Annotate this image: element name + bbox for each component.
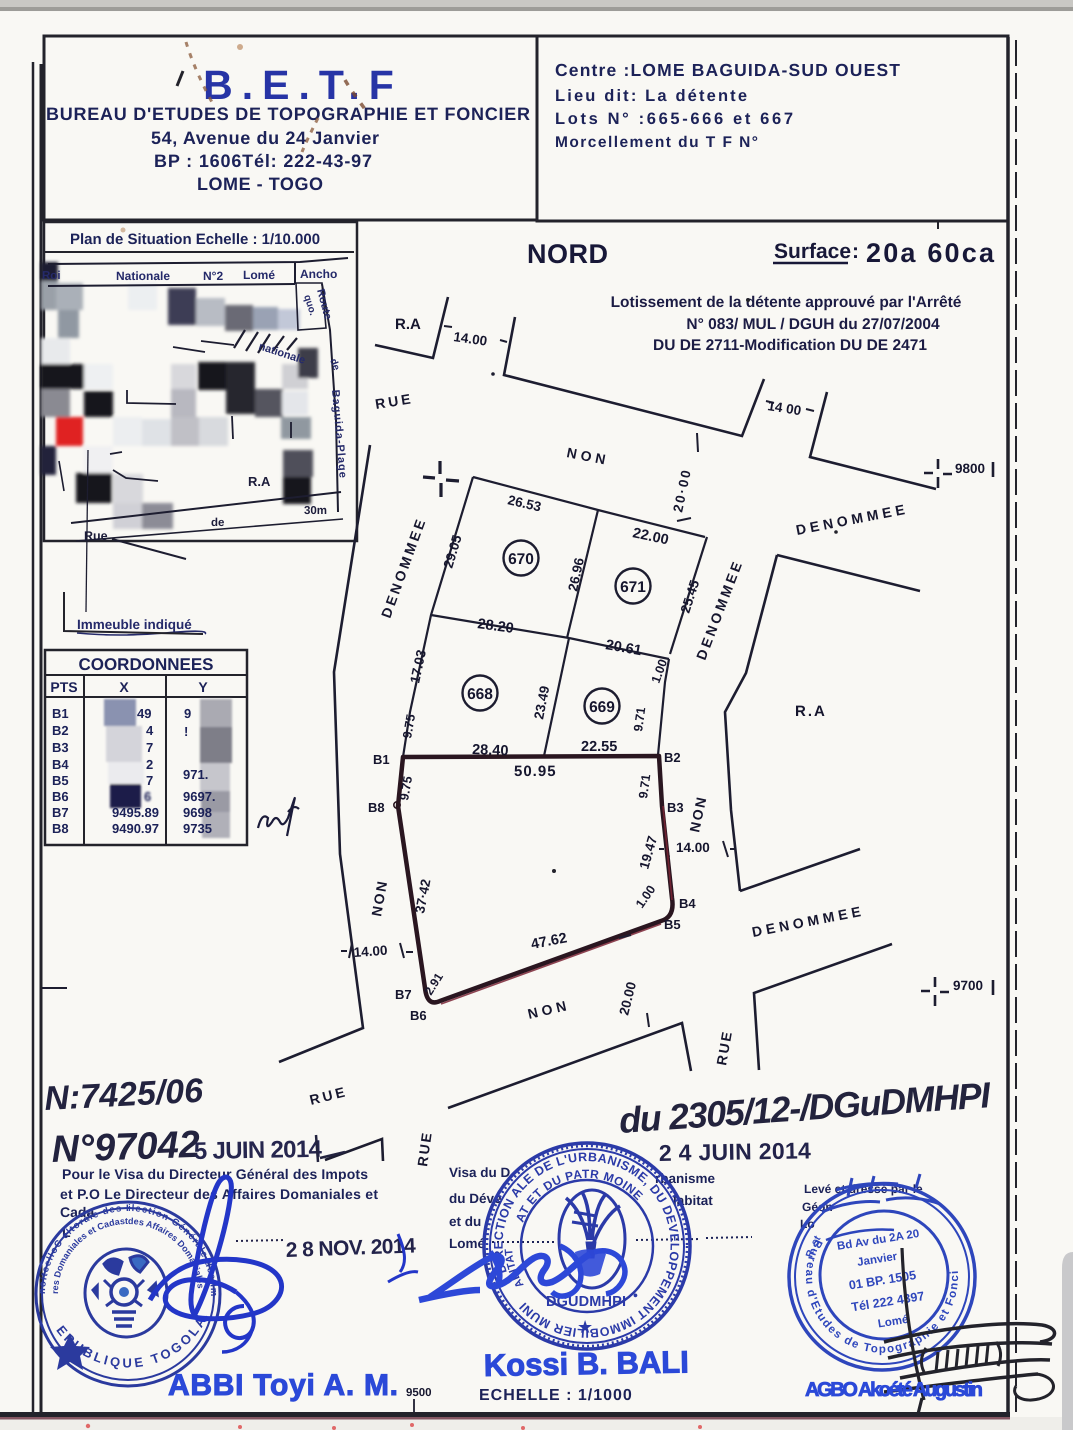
svg-text:et du: et du [449, 1214, 481, 1229]
svg-text:9495.89: 9495.89 [112, 805, 159, 820]
svg-text:9800: 9800 [955, 461, 985, 476]
svg-text:7: 7 [146, 773, 153, 788]
svg-text:B.E.T.F: B.E.T.F [203, 62, 403, 108]
svg-text:B1: B1 [373, 752, 390, 767]
svg-text:Immeuble indiqué: Immeuble indiqué [77, 617, 192, 632]
svg-text:9698: 9698 [183, 805, 212, 820]
svg-text:Visa du D: Visa du D [449, 1165, 511, 1180]
svg-text:54, Avenue du 24 Janvier: 54, Avenue du 24 Janvier [151, 128, 379, 148]
svg-text:N°2: N°2 [203, 269, 223, 283]
svg-text:•: • [633, 1287, 638, 1303]
svg-text:668: 668 [467, 686, 493, 703]
svg-text:B3: B3 [52, 740, 69, 755]
svg-text:B3: B3 [667, 800, 684, 815]
svg-text:ECHELLE : 1/1000: ECHELLE : 1/1000 [479, 1387, 633, 1404]
svg-text:Ancho: Ancho [300, 267, 337, 281]
svg-text:30m: 30m [304, 505, 327, 517]
svg-text:9490.97: 9490.97 [112, 821, 159, 836]
svg-text:N°97042: N°97042 [51, 1124, 201, 1171]
svg-text:Pour le Visa du Directeur Géné: Pour le Visa du Directeur Général des Im… [62, 1166, 368, 1182]
svg-text:6: 6 [144, 789, 151, 804]
svg-text:669: 669 [589, 699, 615, 716]
svg-text:14.00: 14.00 [353, 943, 388, 960]
svg-text:B7: B7 [395, 987, 412, 1002]
svg-text:Centre :LOME BAGUIDA-SUD OUEST: Centre :LOME BAGUIDA-SUD OUEST [555, 60, 900, 80]
svg-text:Nationale: Nationale [116, 269, 170, 283]
svg-text:50.95: 50.95 [514, 763, 557, 780]
svg-text:N° 083/ MUL / DGUH du 27/07/20: N° 083/ MUL / DGUH du 27/07/2004 [686, 316, 940, 333]
svg-text:B5: B5 [664, 917, 681, 932]
svg-text:9700: 9700 [953, 978, 983, 993]
svg-text:Plan de Situation Echelle : 1/: Plan de Situation Echelle : 1/10.000 [70, 231, 320, 248]
svg-text:de: de [211, 517, 224, 529]
svg-text:BP : 1606Tél: 222-43-97: BP : 1606Tél: 222-43-97 [154, 151, 372, 171]
svg-text:Morcellement du T F N°: Morcellement du T F N° [555, 134, 758, 151]
svg-text:R.A: R.A [248, 474, 271, 489]
svg-text:5 JUIN 2014: 5 JUIN 2014 [194, 1136, 323, 1165]
svg-text:NORD: NORD [527, 239, 609, 269]
svg-text:9735: 9735 [183, 821, 212, 836]
svg-text:B8: B8 [368, 800, 385, 815]
svg-text:49: 49 [137, 706, 151, 721]
svg-text:Lomé: Lomé [449, 1236, 485, 1251]
svg-text:DU DE 2711-Modification DU DE: DU DE 2711-Modification DU DE 2471 [653, 337, 927, 354]
svg-text:2 8 NOV. 2014: 2 8 NOV. 2014 [285, 1234, 416, 1262]
svg-text:9: 9 [184, 706, 191, 721]
svg-text:2 4 JUIN 2014: 2 4 JUIN 2014 [659, 1137, 812, 1166]
svg-text:B4: B4 [679, 896, 696, 911]
svg-text:Lots N° :665-666 et 667: Lots N° :665-666 et 667 [555, 110, 793, 128]
svg-text:X: X [119, 679, 129, 695]
svg-text:971.: 971. [183, 767, 208, 782]
svg-text:2: 2 [146, 757, 153, 772]
svg-text:B5: B5 [52, 773, 69, 788]
svg-text:B2: B2 [52, 723, 69, 738]
svg-text:20a 60ca: 20a 60ca [866, 238, 995, 268]
svg-text:Rue: Rue [84, 529, 108, 543]
svg-text:22.55: 22.55 [581, 739, 617, 755]
svg-text:AGBO Akoété Augustin: AGBO Akoété Augustin [805, 1379, 983, 1401]
svg-text:B8: B8 [52, 821, 69, 836]
svg-text:670: 670 [508, 551, 534, 568]
svg-text:14.00: 14.00 [676, 840, 710, 855]
svg-text:B1: B1 [52, 706, 69, 721]
svg-text:Roi: Roi [42, 270, 61, 282]
svg-text:R.A: R.A [395, 316, 421, 333]
svg-text:Lotissement de la détente appr: Lotissement de la détente approuvé par l… [611, 294, 962, 311]
svg-text:9697.: 9697. [183, 789, 216, 804]
svg-text::: : [852, 240, 859, 263]
svg-text:B6: B6 [410, 1008, 427, 1023]
svg-text:!: ! [184, 724, 188, 739]
svg-text:LOME - TOGO: LOME - TOGO [197, 174, 323, 194]
svg-text:28.40: 28.40 [472, 742, 509, 759]
svg-text:9500: 9500 [406, 1387, 432, 1399]
svg-text:PTS: PTS [50, 679, 77, 695]
svg-text:ABBI Toyi A. M.: ABBI Toyi A. M. [168, 1369, 398, 1402]
svg-text:Lomé: Lomé [243, 268, 275, 282]
svg-text:B7: B7 [52, 805, 69, 820]
svg-text:4: 4 [146, 723, 154, 738]
svg-text:671: 671 [620, 579, 646, 596]
svg-text:R.A: R.A [795, 703, 827, 720]
svg-text:et P.O Le Directeur des Affair: et P.O Le Directeur des Affaires Domania… [60, 1186, 378, 1202]
svg-text:Surface: Surface [774, 240, 851, 263]
svg-text:★: ★ [577, 1317, 593, 1337]
svg-text:BUREAU D'ETUDES DE TOPOGRAPHIE: BUREAU D'ETUDES DE TOPOGRAPHIE ET FONCIE… [46, 104, 530, 124]
svg-text:Y: Y [198, 679, 208, 695]
svg-text:B4: B4 [52, 757, 69, 772]
svg-text:7: 7 [146, 740, 153, 755]
svg-text:B6: B6 [52, 789, 69, 804]
svg-text:B2: B2 [664, 750, 681, 765]
svg-text:COORDONNEES: COORDONNEES [78, 655, 213, 674]
svg-text:Kossi B. BALI: Kossi B. BALI [484, 1344, 690, 1383]
